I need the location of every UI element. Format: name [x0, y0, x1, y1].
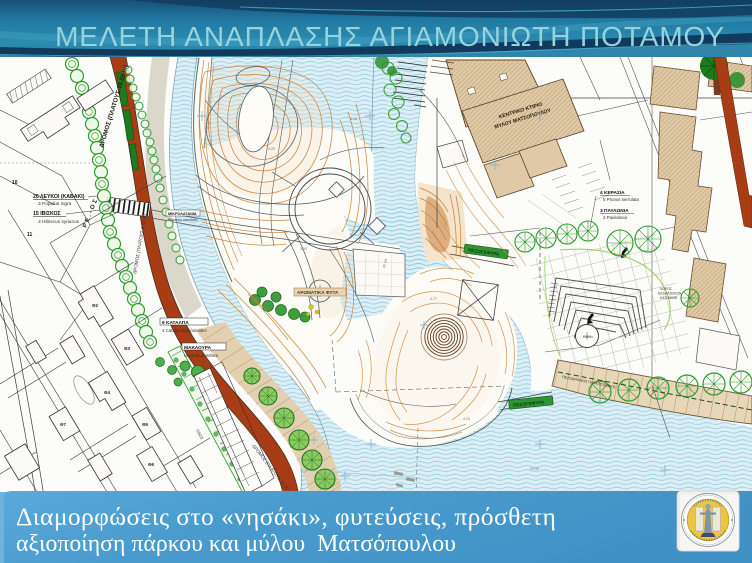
svg-text:Θ6: Θ6: [148, 462, 155, 467]
svg-text:3 ΠΑΥΛΩΝΙΑ: 3 ΠΑΥΛΩΝΙΑ: [600, 208, 629, 214]
svg-text:15 ΙΒΙΣΚΟΣ: 15 ΙΒΙΣΚΟΣ: [33, 211, 61, 217]
svg-text:αξιοποίηση πάρκου και μύλου Μ: αξιοποίηση πάρκου και μύλου Ματσόπουλου: [16, 531, 456, 557]
svg-text:4 Catalpa bignonioides: 4 Catalpa bignonioides: [162, 328, 207, 333]
svg-text:3 Populus nigra: 3 Populus nigra: [38, 201, 72, 207]
svg-text:3 Hibiscus syriacus: 3 Hibiscus syriacus: [38, 219, 80, 225]
svg-text:Θ4: Θ4: [104, 390, 111, 395]
svg-text:4 ΚΕΡΑΣΙΑ: 4 ΚΕΡΑΣΙΑ: [600, 190, 625, 196]
svg-text:6.10: 6.10: [350, 117, 357, 121]
svg-text:ΜΙΚΡΟΛΑΤΑΝΙΑ: ΜΙΚΡΟΛΑΤΑΝΙΑ: [168, 212, 197, 216]
svg-text:Platanus orientalis: Platanus orientalis: [168, 218, 198, 222]
svg-text:4.77: 4.77: [430, 297, 437, 301]
svg-text:4.25: 4.25: [463, 417, 470, 421]
svg-text:11: 11: [27, 232, 33, 238]
svg-text:ΕΚΔΗΛΩΣΕΩΝ: ΕΚΔΗΛΩΣΕΩΝ: [658, 292, 682, 296]
svg-text:10: 10: [12, 180, 18, 186]
svg-text:20 ΛΕΥΚΟΙ (ΚΑΒΑΚΙ): 20 ΛΕΥΚΟΙ (ΚΑΒΑΚΙ): [33, 194, 85, 200]
svg-text:Θ3: Θ3: [124, 346, 131, 351]
svg-text:5 Prunus serrulata: 5 Prunus serrulata: [603, 197, 639, 202]
svg-text:3.90: 3.90: [300, 247, 307, 251]
svg-text:ΑΡΩΜΑΤΙΚΑ ΦΥΤΑ: ΑΡΩΜΑΤΙΚΑ ΦΥΤΑ: [297, 290, 339, 295]
svg-text:Maclura pomifera: Maclura pomifera: [184, 353, 218, 358]
svg-text:Διαμορφώσεις στο «νησάκι», φυτ: Διαμορφώσεις στο «νησάκι», φυτεύσεις, πρ…: [16, 502, 556, 531]
svg-text:2 Paulownia: 2 Paulownia: [603, 215, 627, 220]
svg-text:Θ5: Θ5: [142, 422, 149, 427]
svg-text:ΚΑΤΟΙΚΩΝ: ΚΑΤΟΙΚΩΝ: [660, 296, 678, 300]
svg-text:ΧΩΡΟΣ: ΧΩΡΟΣ: [660, 287, 672, 291]
svg-text:ΜΕΛΕΤΗ ΑΝΑΠΛΑΣΗΣ ΑΓΙΑΜΟΝΙΩΤΗ Π: ΜΕΛΕΤΗ ΑΝΑΠΛΑΣΗΣ ΑΓΙΑΜΟΝΙΩΤΗ ΠΟΤΑΜΟΥ: [55, 21, 725, 52]
svg-text:4.20: 4.20: [268, 147, 275, 151]
svg-text:Θ2: Θ2: [92, 303, 99, 308]
svg-text:Θ7: Θ7: [60, 422, 67, 427]
svg-text:ΜΑΚΛΟΥΡΑ: ΜΑΚΛΟΥΡΑ: [184, 345, 212, 351]
svg-text:ΚΙΟΣΚΙ: ΚΙΟΣΚΙ: [583, 335, 593, 339]
svg-text:9 ΚΑΤΑΛΠΑ: 9 ΚΑΤΑΛΠΑ: [162, 320, 189, 326]
svg-text:43.55: 43.55: [530, 467, 539, 471]
